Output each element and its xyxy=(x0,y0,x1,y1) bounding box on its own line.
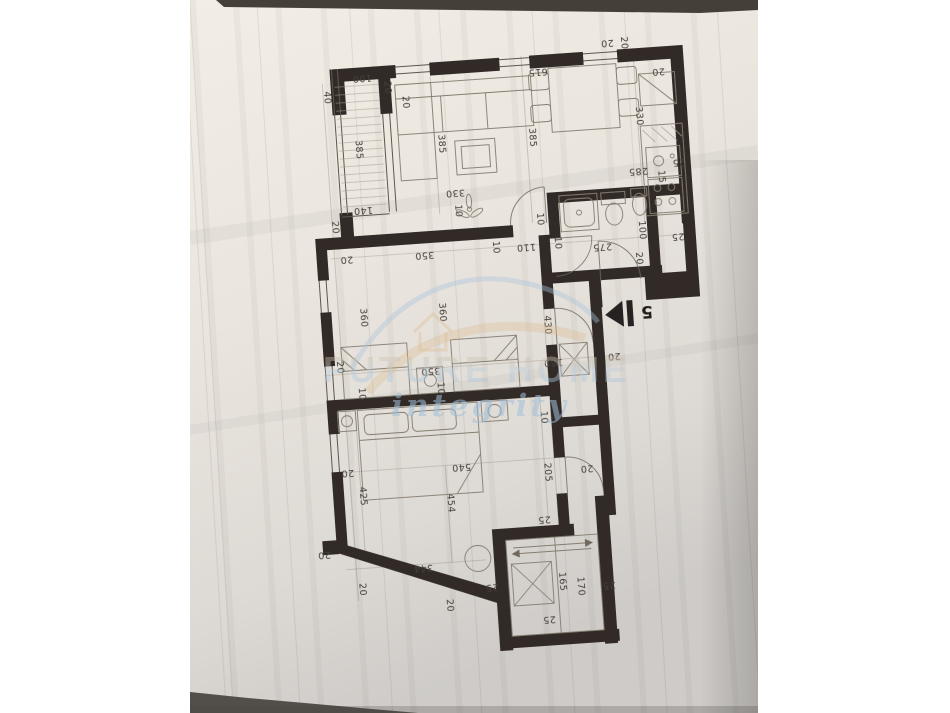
dimension-label: 100 xyxy=(352,72,372,84)
dimension-label: 20 xyxy=(633,252,645,266)
dimension-label: 205 xyxy=(541,462,553,482)
dimension-label: 25 xyxy=(672,156,686,168)
watermark-brand: FUTURE HOME xyxy=(323,349,631,390)
dimension-label: 20 xyxy=(340,253,354,265)
dimension-label: 20 xyxy=(652,65,666,77)
dimension-label: 275 xyxy=(592,240,612,252)
dimension-label: 20 xyxy=(341,467,355,479)
dimension-label: 25 xyxy=(542,613,556,625)
dimension-label: 330 xyxy=(445,186,465,198)
dimension-label: 110 xyxy=(516,241,536,253)
dimension-label: 20 xyxy=(356,583,368,597)
apartment-number: 5 xyxy=(640,301,653,322)
dimension-label: 385 xyxy=(435,134,447,154)
dimension-label: 20 xyxy=(317,549,331,561)
dimension-label: 20 xyxy=(618,36,630,50)
watermark-tagline: integrity xyxy=(391,388,568,424)
dimension-label: 385 xyxy=(526,128,538,148)
dimension-label: 20 xyxy=(399,96,411,110)
dimension-label: 344 xyxy=(413,562,433,574)
dimension-label: 20 xyxy=(329,221,341,235)
dimension-label: 20 xyxy=(381,81,393,95)
dimension-label: 10 xyxy=(490,241,502,255)
dimension-label: 615 xyxy=(528,65,548,77)
dimension-label: 285 xyxy=(628,165,648,177)
dimension-label: 40 xyxy=(321,91,333,105)
dimension-label: 170 xyxy=(574,576,586,596)
dimension-label: 20 xyxy=(444,599,456,613)
dimension-label: 25 xyxy=(671,230,685,242)
dimension-label: 454 xyxy=(444,493,456,513)
dimension-label: 360 xyxy=(357,308,369,328)
dimension-label: 25 xyxy=(537,513,551,525)
dimension-label: 100 xyxy=(636,220,648,240)
dimension-label: 10 xyxy=(534,212,546,226)
surface-bottom-strip xyxy=(190,706,758,713)
dimension-label: 25 xyxy=(602,579,616,591)
dimension-label: 25 xyxy=(485,581,499,593)
screenshot-canvas: 5 40100202038538538533014061520202033028… xyxy=(0,0,950,713)
floor-plan-photo: 5 40100202038538538533014061520202033028… xyxy=(0,0,950,713)
dimension-label: 425 xyxy=(357,486,369,506)
dimension-label: 140 xyxy=(353,204,373,216)
dimension-label: 540 xyxy=(451,461,471,473)
dimension-label: 20 xyxy=(580,462,594,474)
dimension-label: 165 xyxy=(556,572,568,592)
dimension-label: 385 xyxy=(352,140,364,160)
dimension-label: 20 xyxy=(600,37,614,49)
dimension-label: 15 xyxy=(655,170,667,184)
dimension-label: 330 xyxy=(633,106,645,126)
dimension-label: 10 xyxy=(552,236,564,250)
dimension-label: 10 xyxy=(452,204,464,218)
right-edge-shadow xyxy=(700,160,758,713)
dimension-label: 350 xyxy=(415,249,435,261)
